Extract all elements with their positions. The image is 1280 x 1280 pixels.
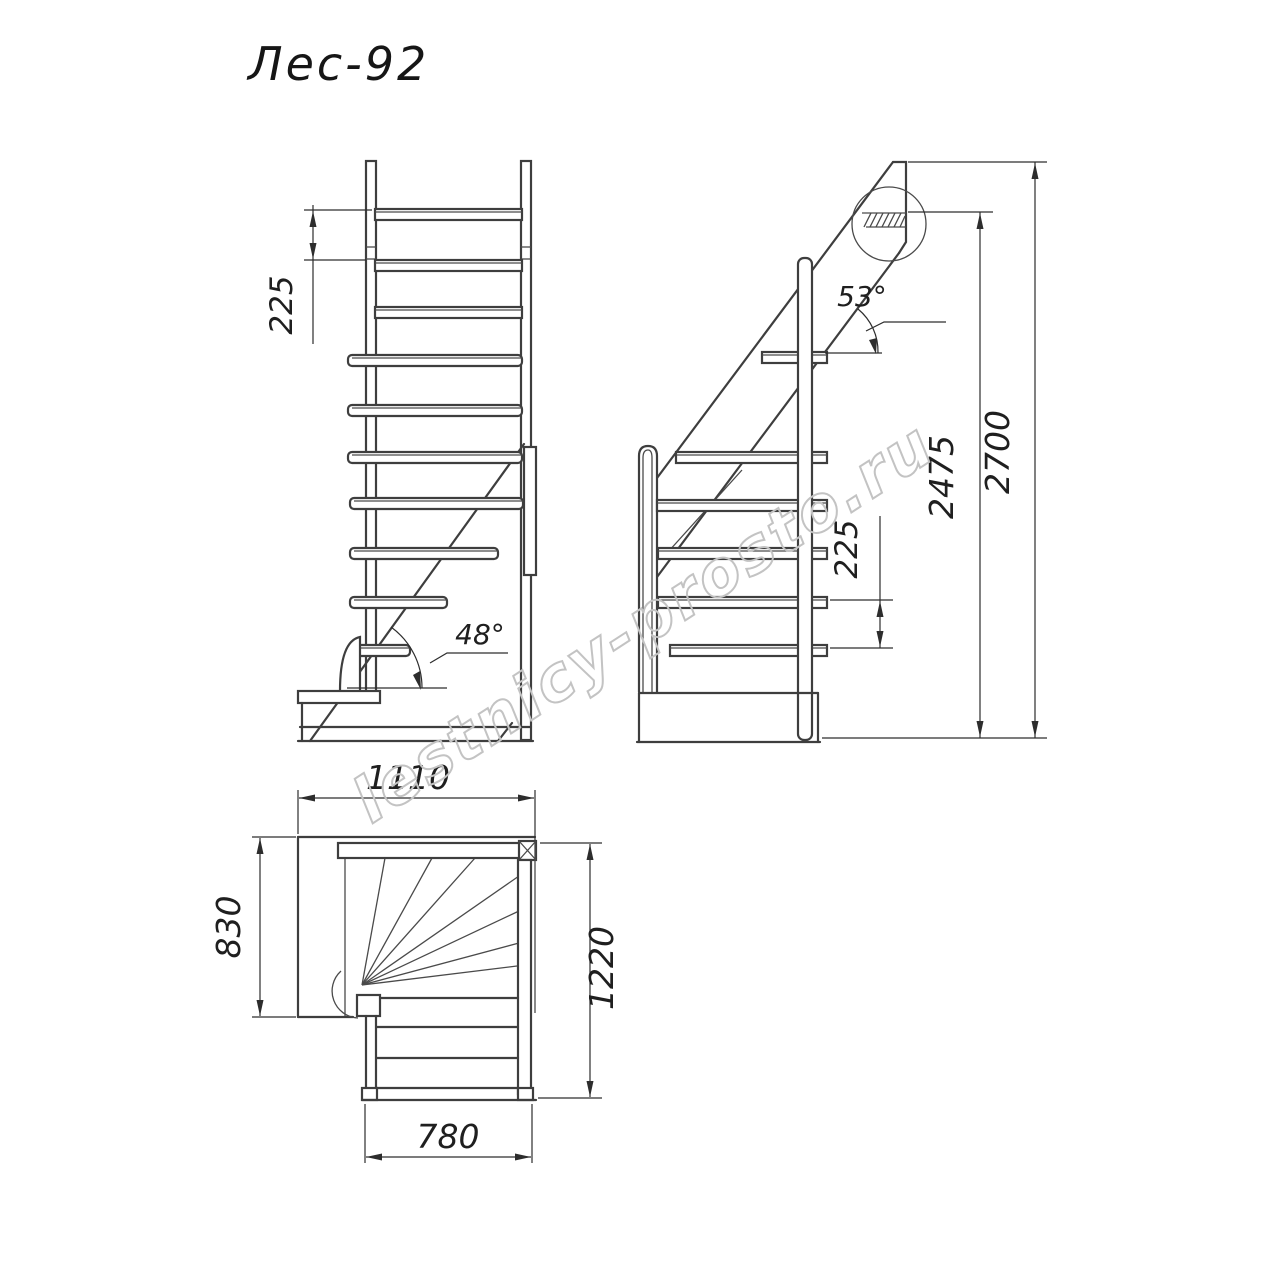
page-title: Лес-92 bbox=[246, 37, 429, 91]
front-left-post bbox=[366, 161, 376, 692]
plan-view: 1110 830 1220 780 bbox=[209, 758, 621, 1163]
front-side-board bbox=[524, 447, 536, 575]
plan-flight-width-label: 780 bbox=[417, 1117, 480, 1156]
floor-slab-hatch bbox=[862, 213, 906, 227]
plan-depth-label: 1220 bbox=[582, 926, 621, 1010]
side-angle-53: 53° bbox=[825, 280, 946, 354]
side-stringer-outer-edge bbox=[654, 162, 893, 482]
plan-straight-flight bbox=[362, 998, 536, 1100]
drawing-sheet: Лес-92 bbox=[0, 0, 1280, 1280]
front-angle-label: 48° bbox=[455, 618, 505, 651]
side-base bbox=[637, 693, 820, 742]
plan-top-tread bbox=[338, 843, 523, 858]
plan-structure bbox=[298, 837, 536, 1100]
front-riser-dim-label: 225 bbox=[264, 275, 300, 334]
front-structure bbox=[298, 161, 536, 741]
plan-winder-depth-label: 830 bbox=[209, 896, 248, 959]
front-bottom-step bbox=[298, 691, 380, 703]
plan-top-newel bbox=[519, 841, 536, 860]
plan-dim-flight-width: 780 bbox=[365, 1104, 532, 1163]
front-dim-riser: 225 bbox=[264, 205, 372, 344]
plan-fan-treads bbox=[362, 858, 519, 985]
front-elevation-view: 225 48° bbox=[264, 161, 536, 741]
stair-drawing: Лес-92 bbox=[0, 0, 1280, 1280]
front-newel-curve bbox=[340, 637, 360, 691]
plan-dim-depth: 1220 bbox=[538, 843, 621, 1098]
plan-right-stringer bbox=[518, 860, 531, 1094]
side-total-height-label: 2700 bbox=[978, 410, 1017, 494]
side-angle-label: 53° bbox=[837, 280, 887, 313]
plan-dim-winder-depth: 830 bbox=[209, 837, 296, 1017]
